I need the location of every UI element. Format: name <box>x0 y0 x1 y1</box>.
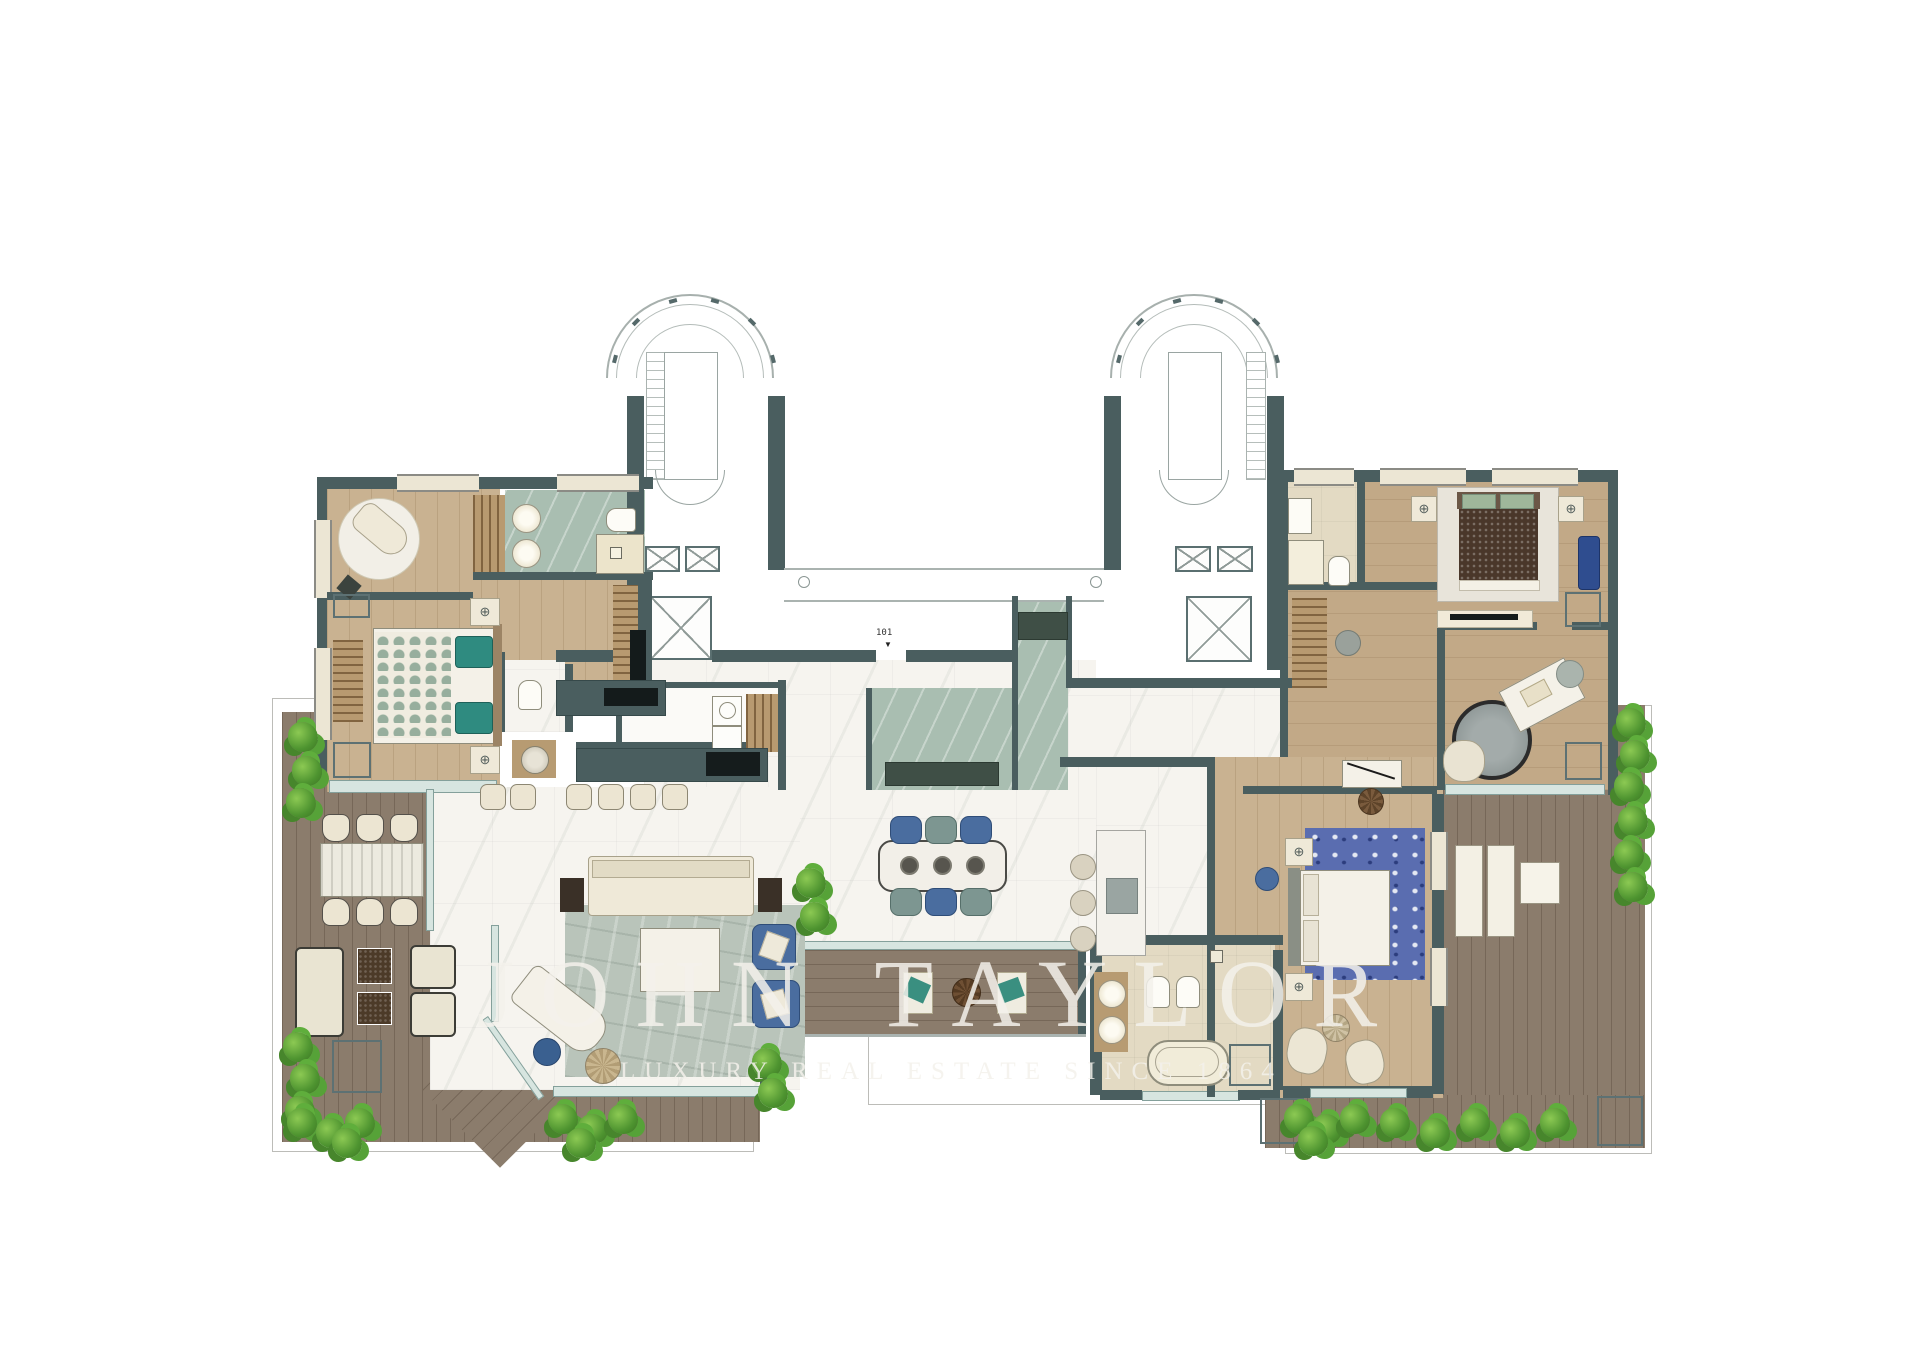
bedroom2-pillow <box>1303 874 1319 916</box>
bath2-bottom-glazing <box>1142 1091 1240 1101</box>
dressing2-wardrobe <box>1292 598 1327 688</box>
dining-chair <box>960 888 992 916</box>
bath1-shower-head <box>610 547 622 559</box>
core-south-wall-c <box>906 650 1012 662</box>
right-wing-east-wall <box>1608 477 1618 795</box>
bedroom3-planter <box>1565 592 1601 627</box>
shrub <box>608 1104 638 1134</box>
bridge-rail-top <box>784 568 1104 570</box>
right-tower-mullion <box>1274 355 1280 364</box>
center-balcony-deck <box>794 940 1086 1035</box>
outdoor-chair <box>390 814 418 842</box>
bedroom3-pillow <box>1462 494 1496 509</box>
bar-stool <box>630 784 656 810</box>
bath2-bidet <box>1176 976 1200 1008</box>
living-sofa-back <box>592 860 750 878</box>
unit-number-label: 101 <box>876 628 892 638</box>
shrub <box>1298 1126 1328 1156</box>
bar-stool <box>598 784 624 810</box>
lamp-icon: ⊕ <box>1294 979 1305 994</box>
shrub <box>1614 840 1644 870</box>
study-planter <box>1565 742 1602 780</box>
bedroom2-bottom-glazing <box>1310 1088 1407 1098</box>
bath2-toilet <box>1146 976 1170 1008</box>
bedroom1-duvet <box>375 632 451 738</box>
bar-stool <box>510 784 536 810</box>
bedroom2-basket <box>1358 788 1384 815</box>
indoor-plant <box>796 868 826 898</box>
bath2-dark-unit <box>1229 1044 1271 1086</box>
sofa-side-table-left <box>560 878 584 912</box>
bedroom3-duvet <box>1459 509 1538 580</box>
dining-chair <box>890 888 922 916</box>
outdoor-coffee-table-1 <box>357 948 392 984</box>
shrub <box>288 722 318 752</box>
bedroom2-side-table <box>1322 1014 1350 1042</box>
shrub <box>1380 1108 1410 1138</box>
outdoor-chair <box>322 814 350 842</box>
dining-plate <box>933 856 952 875</box>
window <box>314 648 332 740</box>
bridge-door-left <box>798 576 810 588</box>
living-west-glazing <box>426 789 434 931</box>
living-notch-glazing <box>491 925 499 1022</box>
outdoor-chair <box>322 898 350 926</box>
bedroom1-pillow-1 <box>455 636 493 668</box>
bedroom3-pillow <box>1500 494 1534 509</box>
dressing2-ottoman <box>1335 630 1361 656</box>
shrub <box>290 1064 320 1094</box>
tv-screen <box>604 688 658 706</box>
right-tower-stair-core <box>1168 352 1222 480</box>
lamp-icon: ⊕ <box>1419 501 1430 516</box>
right-elevator-shaft <box>1186 596 1252 662</box>
bedroom3-tv <box>1450 614 1518 620</box>
utility-washer-drum <box>719 702 736 719</box>
island-stool <box>1070 926 1096 952</box>
shrub <box>1340 1104 1370 1134</box>
window <box>1430 948 1448 1006</box>
ensuite-cabinet <box>1288 540 1324 585</box>
shrub <box>1614 772 1644 802</box>
right-tower-stair-turn <box>1159 470 1229 505</box>
window <box>1294 468 1354 486</box>
entry-arrow-icon: ▼ <box>884 640 892 649</box>
bar-cooktop <box>706 752 760 776</box>
lounger-2 <box>1487 845 1515 937</box>
lamp-icon: ⊕ <box>480 752 491 767</box>
bedroom2-pillow <box>1303 920 1319 962</box>
bath2-east-wall <box>1273 950 1283 1090</box>
dressing2-west-wall <box>1280 590 1288 757</box>
bar-stool <box>662 784 688 810</box>
study-armchair <box>1443 740 1485 782</box>
left-elevator-small-1 <box>645 546 680 572</box>
right-tower-stair-treads <box>1246 352 1266 480</box>
bedroom3-bench <box>1578 536 1600 590</box>
lamp-icon: ⊕ <box>480 604 491 619</box>
balcony-pier-east <box>1078 940 1086 1035</box>
foyer-west-wall <box>866 688 872 790</box>
foyer-console <box>885 762 999 786</box>
bar-stool <box>566 784 592 810</box>
shrub <box>1618 806 1648 836</box>
island-stool <box>1070 854 1096 880</box>
shrub <box>292 756 322 786</box>
bedroom2-nightstand-1: ⊕ <box>1285 838 1313 866</box>
bedroom2-nightstand-2: ⊕ <box>1285 973 1313 1001</box>
living-south-glazing <box>553 1086 765 1097</box>
powder-basin <box>521 746 549 774</box>
balcony-glazing <box>802 941 1080 950</box>
window <box>1380 468 1466 486</box>
island-stool <box>1070 890 1096 916</box>
shrub <box>1540 1108 1570 1138</box>
outdoor-chair <box>356 898 384 926</box>
left-elevator-shaft <box>650 596 712 660</box>
dressing-planter <box>333 594 370 618</box>
left-tower-stair-treads <box>646 352 666 480</box>
left-tower-mullion <box>770 355 776 364</box>
ensuite-west-wall <box>1280 482 1288 590</box>
ensuite-toilet <box>1328 556 1350 586</box>
bridge-door-right <box>1090 576 1102 588</box>
right-tower-wall-west <box>1104 396 1121 570</box>
shrub <box>286 788 316 818</box>
lamp-icon: ⊕ <box>1566 501 1577 516</box>
bedroom1-planter <box>333 742 371 778</box>
shrub <box>1616 708 1646 738</box>
shrub <box>332 1128 362 1158</box>
dining-plate <box>900 856 919 875</box>
indoor-plant <box>800 902 830 932</box>
shrub <box>566 1128 596 1158</box>
bath1-toilet <box>606 508 636 532</box>
bedroom2-headboard <box>1288 868 1300 966</box>
outdoor-armchair-1 <box>410 945 456 989</box>
shrub <box>1618 872 1648 902</box>
balcony-wicker-table <box>952 978 981 1007</box>
kitchen-island-sink <box>1106 878 1138 914</box>
indoor-plant <box>758 1078 788 1108</box>
right-corridor-top-wall <box>1072 678 1292 688</box>
window <box>557 474 639 492</box>
lounger-1 <box>1455 845 1483 937</box>
ensuite-bed3-divider <box>1357 482 1365 590</box>
bath2-shower-drain <box>1210 950 1223 963</box>
study-stool <box>1556 660 1584 688</box>
core-south-wall-b <box>712 650 876 662</box>
right-elevator-small-1 <box>1175 546 1211 572</box>
outdoor-chair <box>356 814 384 842</box>
right-corridor-floor <box>1068 688 1290 758</box>
bar-stool <box>480 784 506 810</box>
bedroom2-top-wall <box>1243 786 1437 794</box>
bedroom2-pouf <box>1255 867 1279 891</box>
living-coffee-table <box>640 928 720 992</box>
window <box>1492 468 1578 486</box>
bedroom3-foot-throw <box>1459 580 1540 591</box>
right-elevator-small-2 <box>1217 546 1253 572</box>
sofa-side-table-right <box>758 878 782 912</box>
powder-toilet <box>518 680 542 710</box>
window <box>314 520 332 598</box>
utility-east-wall <box>778 680 786 790</box>
left-terrace-planter <box>332 1040 382 1093</box>
left-tower-stair-turn <box>655 470 725 505</box>
floor-plan-page: ⊕ ⊕ 101 ▼ <box>0 0 1920 1356</box>
bedroom1-nightstand-2: ⊕ <box>470 746 500 774</box>
dining-chair <box>925 888 957 916</box>
right-corridor-bottom-wall <box>1060 757 1213 767</box>
window <box>397 474 479 492</box>
shrub <box>1620 740 1650 770</box>
left-tower-wall-east <box>768 396 785 570</box>
living-wicker-table <box>585 1048 621 1084</box>
bath2-tub-inner <box>1155 1047 1219 1077</box>
outdoor-chair <box>390 898 418 926</box>
bath1-wardrobe <box>473 495 505 572</box>
study-south-glazing <box>1445 784 1605 795</box>
bedroom3-nightstand-2: ⊕ <box>1558 496 1584 522</box>
indoor-plant <box>752 1048 782 1078</box>
shrub <box>287 1108 317 1138</box>
bedroom1-nightstand-1: ⊕ <box>470 598 500 626</box>
shrub <box>1460 1108 1490 1138</box>
bedroom1-pillow-2 <box>455 702 493 734</box>
lamp-icon: ⊕ <box>1294 844 1305 859</box>
bedroom3-nightstand-1: ⊕ <box>1411 496 1437 522</box>
bath2-sink-1 <box>1098 980 1126 1008</box>
shrub <box>1420 1118 1450 1148</box>
shrub <box>283 1032 313 1062</box>
dining-chair <box>890 816 922 844</box>
window <box>1430 832 1448 890</box>
balcony-railing <box>800 1034 1086 1037</box>
dining-chair <box>960 816 992 844</box>
bath1-sink-2 <box>512 539 541 568</box>
bath1-sink-1 <box>512 504 541 533</box>
outdoor-dining-table <box>320 843 424 897</box>
bedroom1-headboard <box>493 624 502 746</box>
dining-plate <box>966 856 985 875</box>
bath2-bottom-wall-a <box>1100 1090 1142 1100</box>
bath2-sink-2 <box>1098 1016 1126 1044</box>
living-pouf-blue <box>533 1038 561 1066</box>
bedroom1-terrace-glazing <box>329 780 497 793</box>
shrub <box>1500 1118 1530 1148</box>
ensuite-vanity <box>1288 498 1312 534</box>
lounger-side-table <box>1520 862 1560 904</box>
bridge-rail-bottom <box>784 600 1104 602</box>
dining-chair <box>925 816 957 844</box>
pantry-counter <box>1018 612 1068 640</box>
outdoor-armchair-2 <box>410 992 456 1037</box>
bedroom1-wardrobe <box>333 640 363 722</box>
pantry-east-wall <box>1066 596 1072 688</box>
right-terrace-planter-2 <box>1597 1096 1643 1146</box>
left-elevator-small-2 <box>685 546 720 572</box>
left-tower-stair-core <box>664 352 718 480</box>
outdoor-coffee-table-2 <box>357 992 392 1025</box>
entry-arrow-glyph: ▼ <box>884 640 892 649</box>
utility-cabinet <box>746 694 778 752</box>
outdoor-sofa <box>295 947 344 1037</box>
